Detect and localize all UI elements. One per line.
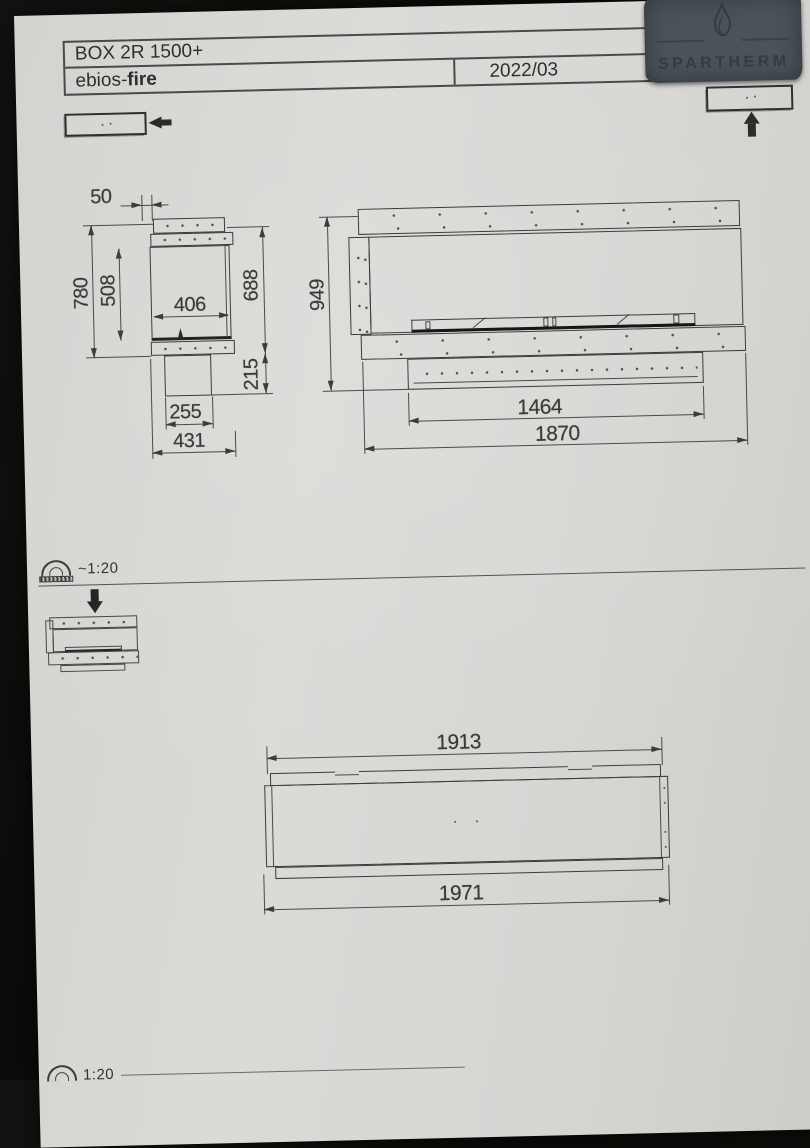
- arrowhead: [225, 448, 235, 454]
- side-bottom-flange: [151, 340, 235, 356]
- dim-plan-glass-width: 1913: [436, 730, 481, 755]
- logo-rule-left: [657, 40, 705, 43]
- dim-line: [152, 451, 235, 454]
- plan-strip-notch: [568, 765, 592, 771]
- hint-box-left: [64, 112, 147, 137]
- ext-line: [150, 359, 154, 459]
- dot: [663, 787, 665, 789]
- revision-date: 2022/03: [453, 55, 650, 85]
- brand-prefix: ebios-: [75, 69, 127, 92]
- bottom-scale-label: 1:20: [83, 1066, 115, 1084]
- dot: [754, 96, 756, 98]
- dim-side-inner-depth: 406: [174, 294, 206, 318]
- mini-bottom-flange: [48, 650, 139, 665]
- arrowhead: [153, 314, 163, 320]
- protractor-base: [39, 576, 73, 583]
- dot: [664, 831, 666, 833]
- arrow-down-icon: [87, 601, 103, 613]
- burner-tab: [552, 317, 556, 326]
- arrowhead: [166, 421, 176, 427]
- bottom-partial-line: [121, 1067, 465, 1076]
- dim-side-top-offset: 50: [90, 186, 112, 209]
- dim-line: [262, 227, 266, 353]
- arrowhead: [737, 437, 747, 443]
- dim-line: [119, 249, 122, 341]
- flame-icon: [707, 1, 738, 40]
- arrowhead: [259, 227, 265, 237]
- arrowhead: [651, 746, 661, 752]
- dim-front-overall-height: 949: [306, 273, 329, 318]
- dim-plan-overall-width: 1971: [439, 881, 484, 906]
- ext-line: [362, 362, 365, 454]
- dim-side-base-depth: 431: [173, 430, 205, 454]
- title-block: BOX 2R 1500+ ebios-fire 2022/03: [63, 27, 652, 96]
- arrowhead: [409, 418, 419, 424]
- dot: [746, 97, 748, 99]
- scanned-paper: BOX 2R 1500+ ebios-fire 2022/03 SPARTHER…: [14, 0, 810, 1148]
- dim-side-overall-height: 780: [70, 271, 93, 316]
- brand-bold: fire: [127, 68, 157, 91]
- protractor-icon-inner: [49, 567, 63, 576]
- logo-wordmark: SPARTHERM: [645, 52, 802, 74]
- dim-line: [91, 225, 95, 358]
- ext-line: [745, 353, 748, 445]
- dim-side-body-height: 688: [240, 263, 263, 308]
- arrowhead: [262, 343, 268, 353]
- spartherm-logo: SPARTHERM: [644, 0, 803, 83]
- hint-box-right: [706, 85, 794, 112]
- dot: [110, 123, 112, 125]
- arrowhead: [659, 897, 669, 903]
- arrowhead: [152, 450, 162, 456]
- arrowhead: [88, 225, 94, 235]
- plan-body: [264, 776, 670, 867]
- arrowhead: [91, 348, 97, 358]
- burner-tab: [425, 321, 430, 329]
- arrowhead: [328, 381, 334, 391]
- arrowhead: [117, 331, 123, 341]
- burner-tab: [543, 317, 548, 326]
- side-top-rim: [153, 217, 225, 234]
- arrowhead: [324, 217, 330, 227]
- ext-line: [323, 389, 408, 392]
- dot: [664, 802, 666, 804]
- arrowhead: [203, 420, 213, 426]
- dim-side-opening-height: 508: [97, 269, 120, 314]
- scale-label: ~1:20: [78, 560, 119, 578]
- logo-rule-right: [742, 38, 790, 41]
- side-burner-tab: [177, 328, 183, 339]
- plan-strip-notch: [335, 770, 359, 776]
- mini-bottom-tray: [60, 664, 125, 673]
- arrowhead: [219, 312, 229, 318]
- drawing-content: BOX 2R 1500+ ebios-fire 2022/03 SPARTHER…: [0, 0, 810, 1080]
- dim-side-duct-height: 215: [240, 352, 263, 397]
- arrowhead: [266, 755, 276, 761]
- dot: [665, 846, 667, 848]
- section-separator-line: [38, 568, 805, 587]
- arrowhead: [263, 383, 269, 393]
- arrowhead: [262, 353, 268, 363]
- arrowhead: [116, 249, 122, 259]
- arrowhead: [364, 446, 374, 452]
- arrowhead: [131, 202, 141, 208]
- burner-tab: [673, 314, 679, 323]
- arrow-left-tail: [160, 119, 171, 125]
- arrowhead: [693, 411, 703, 417]
- arrowhead: [151, 202, 161, 208]
- arrow-up-tail: [748, 124, 756, 137]
- arrowhead: [264, 906, 274, 912]
- dot: [102, 124, 104, 126]
- side-duct: [164, 354, 212, 396]
- arrow-up-icon: [743, 111, 759, 123]
